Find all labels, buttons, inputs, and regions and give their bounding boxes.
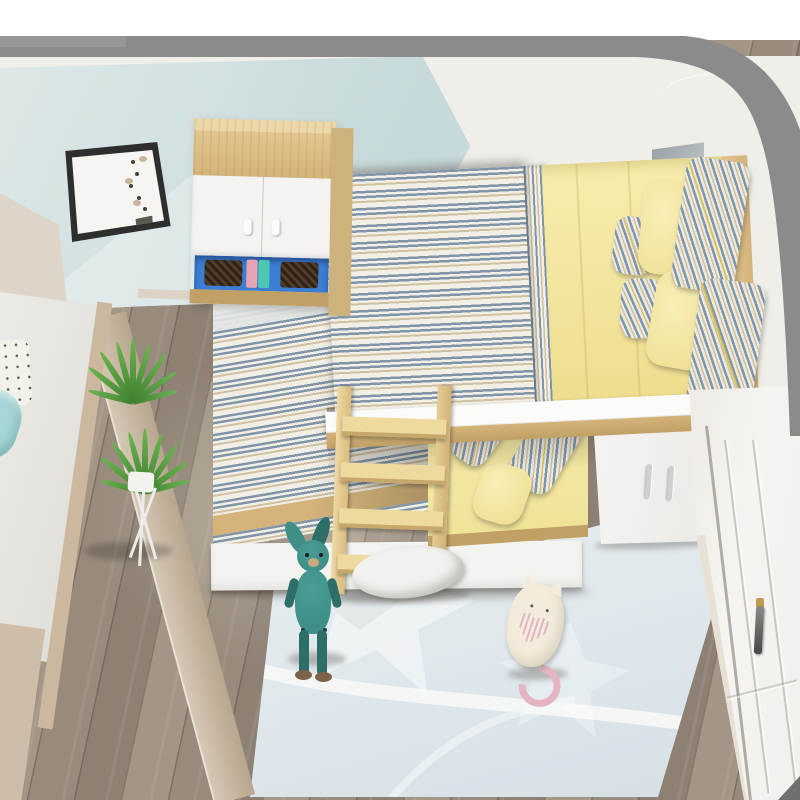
ladder-rung (340, 462, 445, 485)
art-figure (143, 207, 147, 211)
plant-leaves (92, 302, 172, 402)
bunny-plush (282, 516, 344, 684)
woven-basket (280, 261, 319, 288)
bunny-foot (315, 672, 332, 682)
striped-duvet (324, 166, 537, 414)
bookcase-wood-top (193, 118, 336, 179)
art-figure (125, 178, 133, 184)
art-figure (135, 172, 139, 176)
bunny-body (295, 570, 331, 634)
bookcase-doors (191, 175, 335, 259)
art-figure (133, 200, 141, 206)
bed-side-wood-panel (328, 128, 353, 316)
bunny-eye (319, 553, 323, 557)
book (258, 260, 270, 288)
bunny-foot (295, 670, 312, 680)
bedroom-photo (0, 0, 800, 800)
book (246, 260, 258, 288)
bunny-muzzle (308, 558, 319, 567)
woven-basket (204, 259, 243, 286)
art-figure (129, 184, 133, 188)
storage-shelf (194, 255, 329, 292)
sheet-crease (575, 163, 589, 401)
plant-pot (127, 471, 154, 492)
bunny-eye (305, 553, 309, 557)
bookcase (190, 118, 337, 307)
bookcase-handle (243, 219, 251, 235)
bunny-head (297, 540, 329, 572)
art-figure (139, 156, 147, 162)
plant-stand-leg (134, 488, 157, 560)
ladder-rung (339, 508, 444, 531)
door-seam (261, 177, 264, 257)
ladder-rung (342, 416, 447, 439)
door-handle (754, 606, 765, 654)
art-figure (131, 160, 135, 164)
side-cabinet-base (0, 614, 45, 800)
potted-plant (82, 296, 202, 586)
cabinet-handle (667, 466, 674, 500)
cabinet-handle (645, 464, 652, 498)
bookcase-handle (271, 219, 279, 235)
cat-ear (520, 573, 537, 588)
bunny-leg (317, 630, 327, 676)
